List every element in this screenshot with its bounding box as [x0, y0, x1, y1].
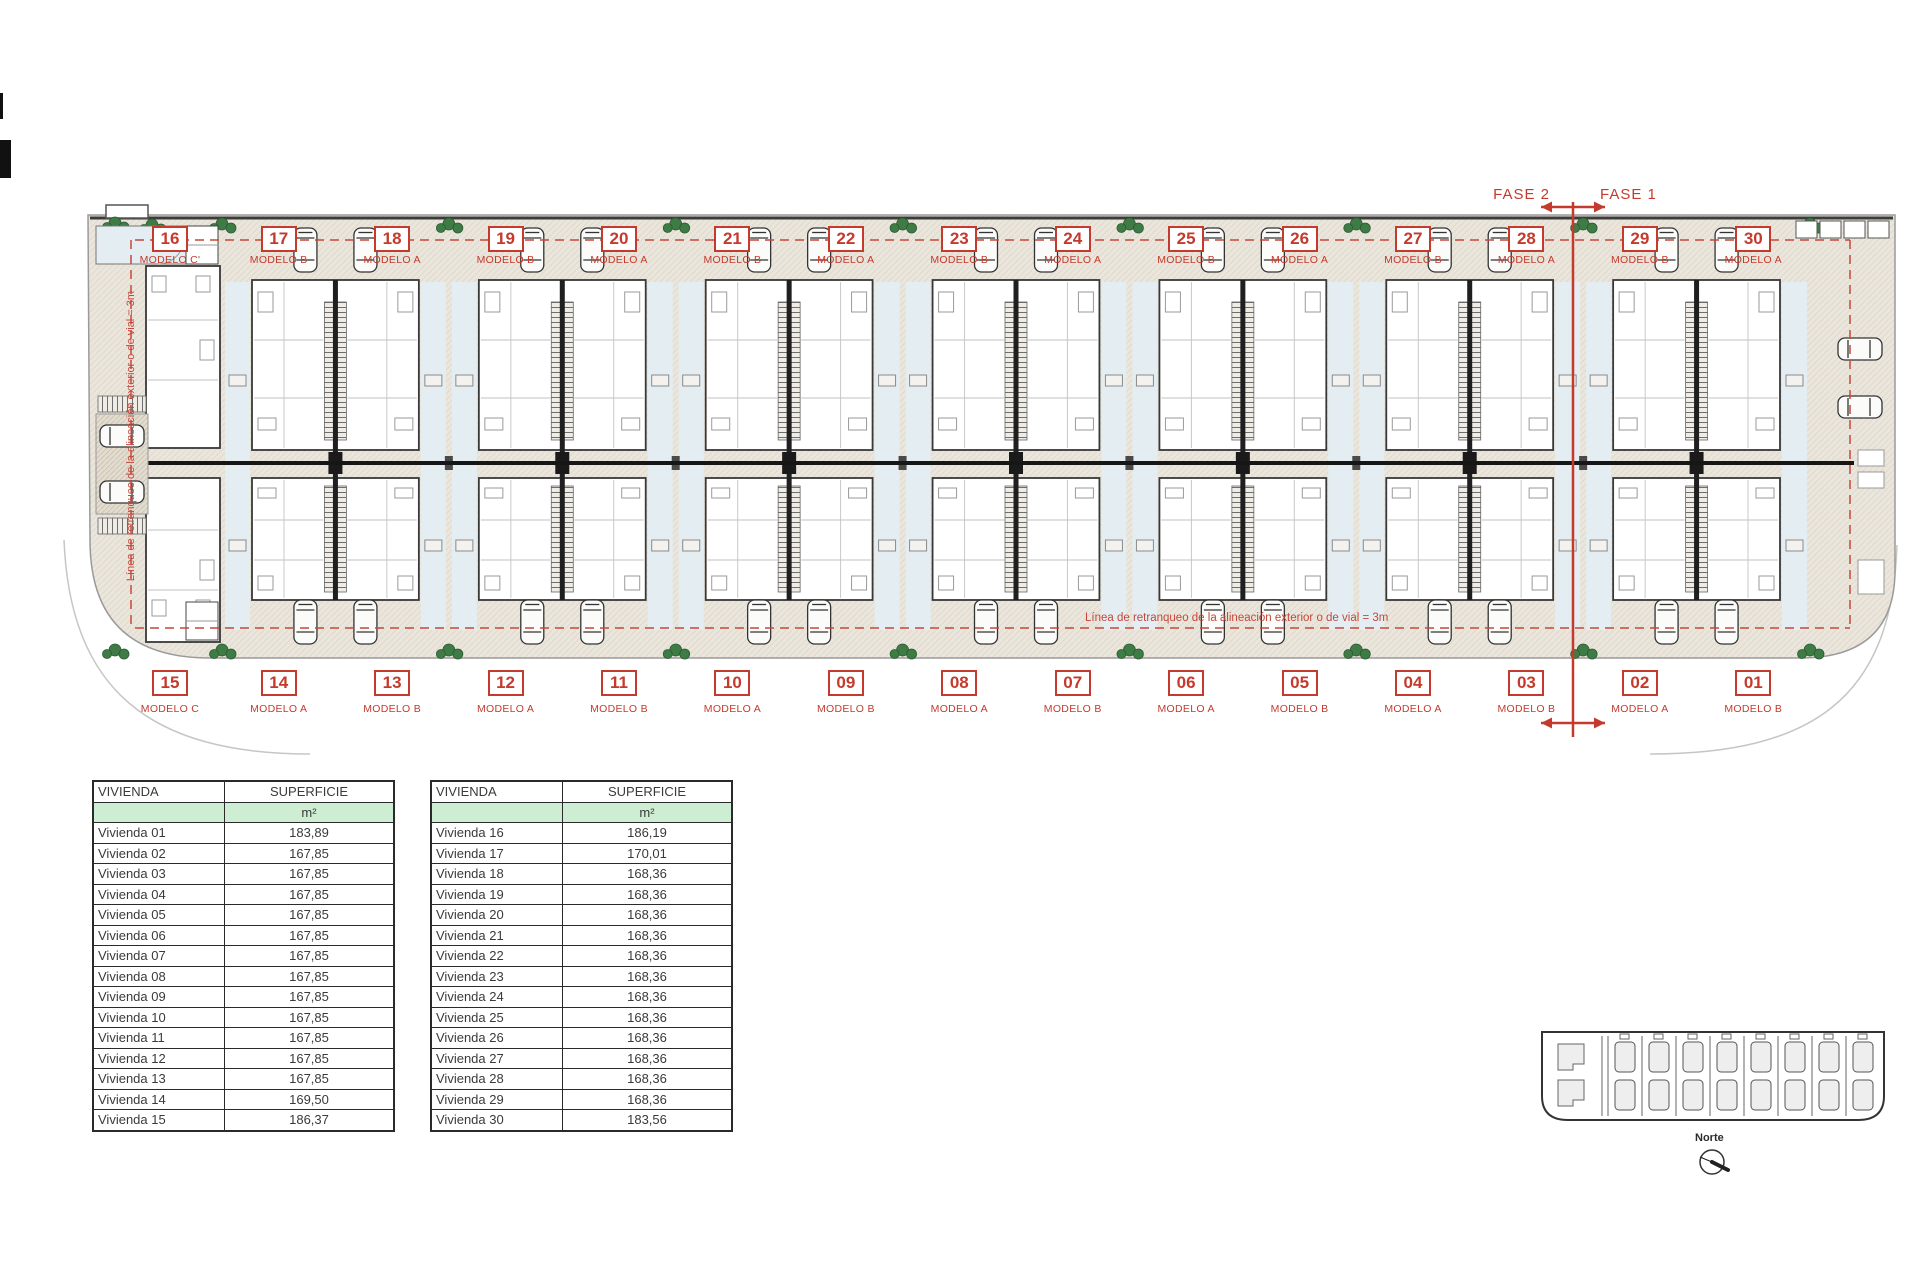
architectural-site-plan-sheet: FASE 2 FASE 1 Línea de retranqueo de la …: [0, 0, 1920, 1280]
north-label: Norte: [1695, 1132, 1724, 1144]
